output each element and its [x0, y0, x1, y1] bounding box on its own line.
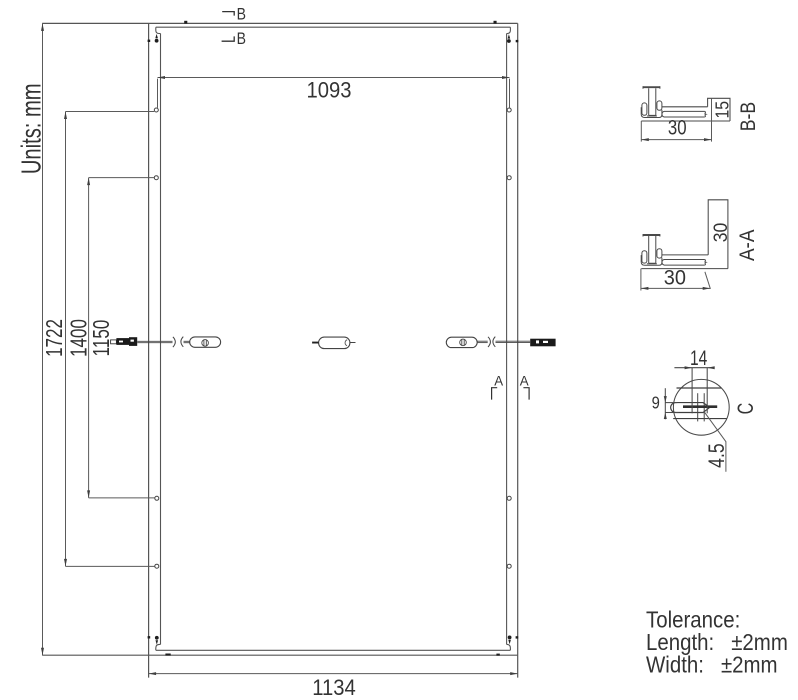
svg-text:A: A — [520, 373, 530, 388]
svg-text:14: 14 — [690, 345, 707, 369]
svg-text:9: 9 — [652, 393, 660, 413]
svg-text:15: 15 — [711, 101, 733, 118]
svg-text:1722: 1722 — [41, 319, 67, 357]
svg-text:1150: 1150 — [89, 320, 115, 357]
svg-text:30: 30 — [664, 266, 686, 290]
svg-text:A-A: A-A — [736, 229, 759, 261]
svg-text:A: A — [494, 373, 504, 388]
svg-text:1134: 1134 — [312, 676, 356, 700]
svg-text:30: 30 — [709, 223, 731, 243]
svg-text:C: C — [735, 403, 759, 415]
svg-text:30: 30 — [668, 117, 687, 140]
svg-text:Width: ±2mm: Width: ±2mm — [646, 651, 778, 678]
svg-text:4.5: 4.5 — [705, 443, 729, 467]
svg-text:B: B — [237, 6, 246, 24]
svg-text:B-B: B-B — [737, 102, 761, 131]
svg-text:1093: 1093 — [306, 79, 351, 103]
svg-text:B: B — [237, 30, 246, 48]
